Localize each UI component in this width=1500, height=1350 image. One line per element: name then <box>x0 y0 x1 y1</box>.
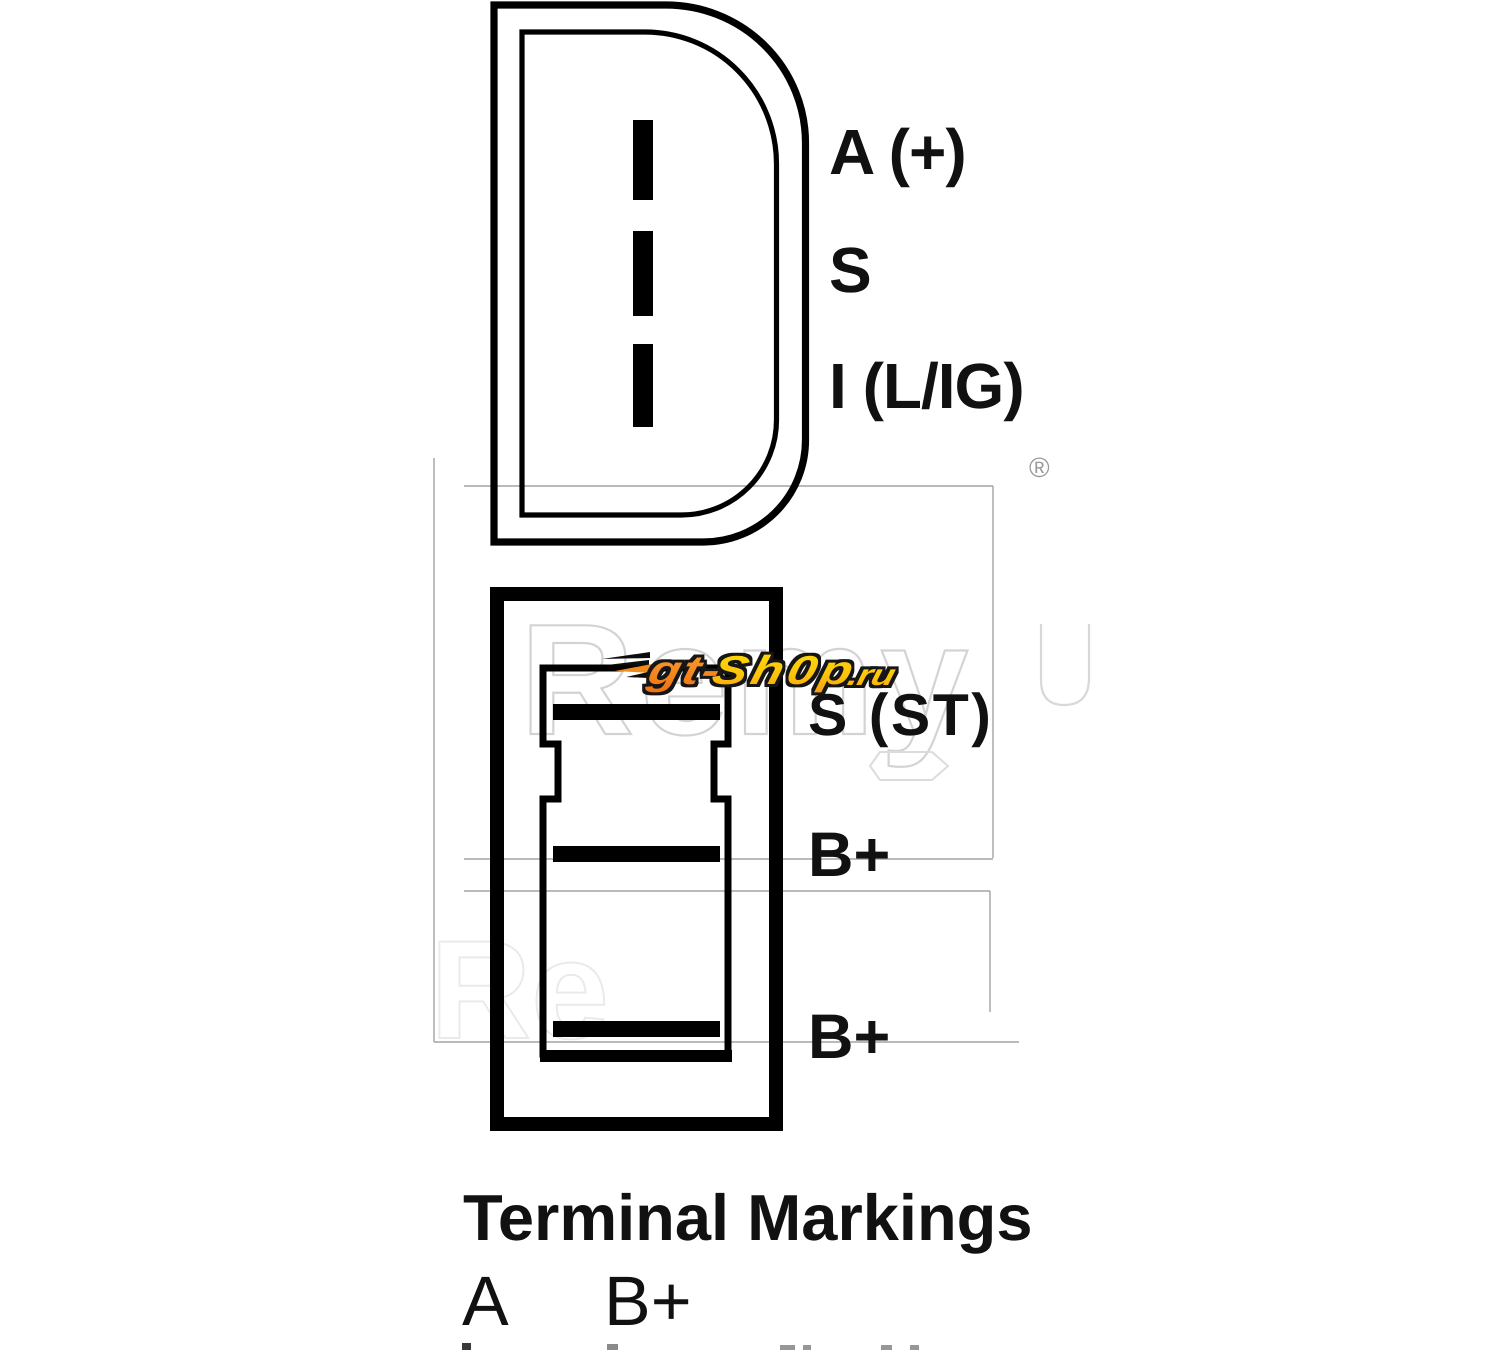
svg-text:Re: Re <box>430 911 609 1068</box>
svg-text:I (L/IG): I (L/IG) <box>829 350 1024 422</box>
svg-text:.ru: .ru <box>844 659 899 692</box>
svg-text:B+: B+ <box>808 820 890 890</box>
svg-text:Terminal Markings: Terminal Markings <box>463 1181 1033 1254</box>
svg-text:S: S <box>829 234 872 306</box>
svg-text:A: A <box>462 1262 509 1340</box>
svg-text:B+: B+ <box>604 1262 692 1340</box>
svg-text:B+: B+ <box>808 1002 890 1072</box>
svg-text:A (+): A (+) <box>829 116 966 188</box>
svg-text:Sh0p: Sh0p <box>708 648 862 693</box>
svg-text:®: ® <box>1029 452 1050 483</box>
